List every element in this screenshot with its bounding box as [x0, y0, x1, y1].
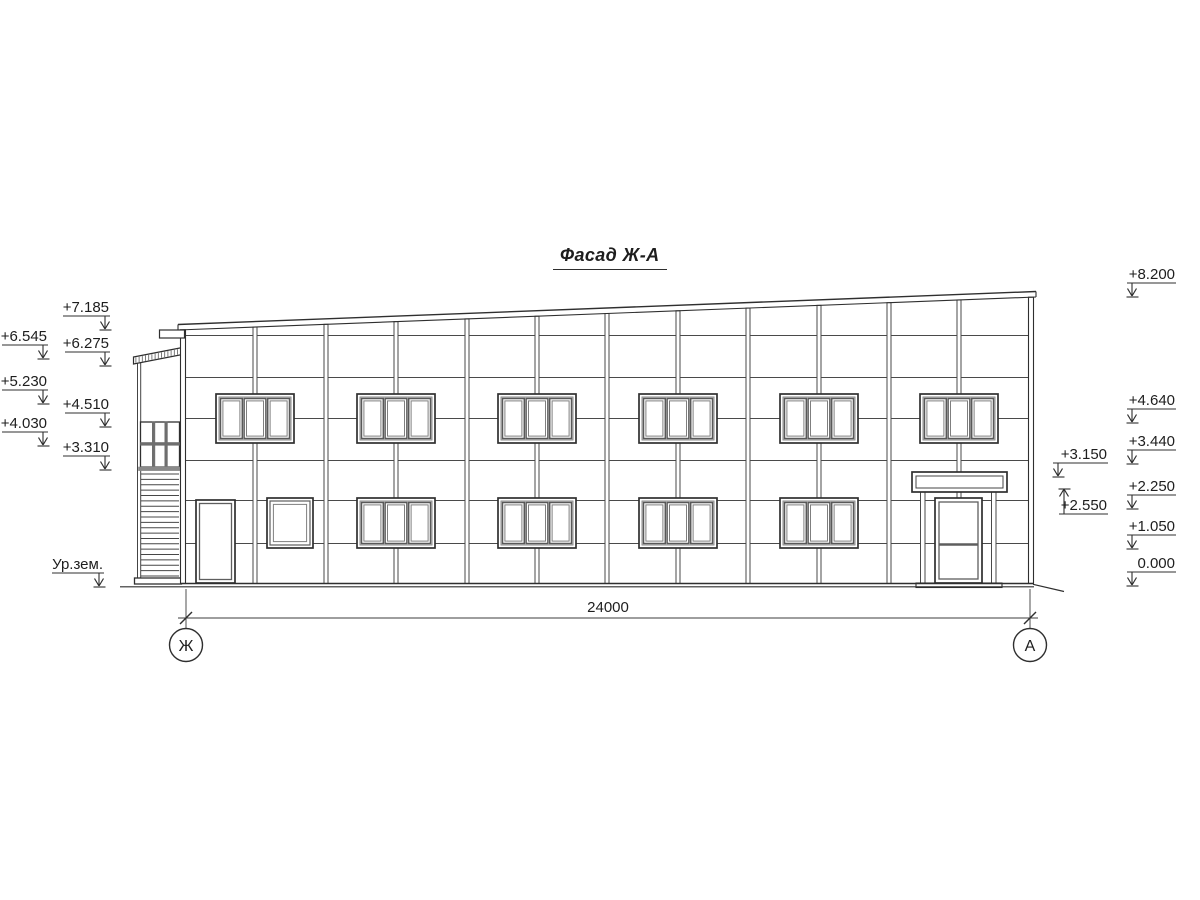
window-pane	[785, 503, 807, 544]
window-pane	[409, 503, 431, 544]
left-door	[196, 500, 235, 583]
elevation-arrow-head	[1128, 501, 1133, 509]
window-pane	[667, 399, 689, 439]
elevation-arrow-head	[101, 358, 106, 366]
elevation-arrow-head	[1128, 578, 1133, 586]
window-pane	[808, 399, 830, 439]
window-pane	[385, 399, 407, 439]
elevation-mark: +2.550	[1059, 489, 1109, 514]
elevation-label: +1.050	[1129, 518, 1175, 535]
window-pane	[832, 503, 854, 544]
elevation-arrow-head	[39, 351, 44, 359]
window-pane	[972, 399, 994, 439]
canopy-post	[921, 492, 926, 583]
elevation-arrow-head	[43, 351, 48, 359]
elevation-arrow-head	[39, 396, 44, 404]
elevation-label: +4.510	[63, 396, 109, 413]
elevation-arrow-head	[1058, 469, 1063, 477]
axis-label: А	[1025, 638, 1036, 655]
window-pane	[691, 503, 713, 544]
elevation-label: +2.550	[1061, 497, 1107, 514]
elevation-mark: +8.200	[1127, 266, 1177, 297]
window-pane	[503, 399, 525, 439]
elevation-arrow-head	[1128, 289, 1133, 297]
mullion	[465, 319, 469, 584]
elevation-arrow-head	[105, 358, 110, 366]
elevation-mark: +4.030	[1, 415, 50, 446]
window-pane	[667, 503, 689, 544]
elevation-label: +6.545	[1, 328, 47, 345]
entrance-canopy	[912, 472, 1007, 492]
ground-slope-line	[1033, 584, 1064, 591]
elevation-arrow-head	[1060, 489, 1065, 497]
window-pane	[526, 503, 548, 544]
window-pane	[244, 399, 266, 439]
elevation-label: +3.310	[63, 439, 109, 456]
elevation-label: +4.030	[1, 415, 47, 432]
elevation-mark: +3.150	[1053, 446, 1109, 477]
elevation-arrow-head	[105, 419, 110, 427]
window-pane	[409, 399, 431, 439]
elevation-label: +6.275	[63, 335, 109, 352]
window-pane	[550, 399, 572, 439]
canopy-post	[992, 492, 997, 583]
left-wall	[181, 330, 186, 584]
elevation-arrow-head	[1064, 489, 1069, 497]
mullion	[746, 308, 750, 583]
elevation-label: Ур.зем.	[52, 556, 103, 573]
window-pane	[644, 503, 666, 544]
window-pane	[785, 399, 807, 439]
window-pane	[362, 399, 384, 439]
elevation-mark: Ур.зем.	[52, 556, 106, 587]
entrance-door-frame	[935, 498, 982, 583]
window-pane	[550, 503, 572, 544]
elevation-arrow-head	[1128, 456, 1133, 464]
elevation-arrow-head	[101, 322, 106, 330]
elevation-label: +3.150	[1061, 446, 1107, 463]
door-frame	[196, 500, 235, 583]
tower-sill	[139, 467, 182, 471]
elevation-label: +5.230	[1, 373, 47, 390]
elevation-label: +4.640	[1129, 392, 1175, 409]
dimension-text: 24000	[587, 599, 629, 616]
elevation-arrow-head	[101, 462, 106, 470]
parapet-ledge	[160, 330, 185, 338]
window-pane	[503, 503, 525, 544]
elevation-arrow-head	[1132, 289, 1137, 297]
mullion	[887, 303, 891, 584]
elevation-mark: +6.545	[1, 328, 50, 359]
elevation-arrow-head	[1132, 501, 1137, 509]
mullion	[253, 327, 257, 583]
elevation-mark: +6.275	[63, 335, 112, 366]
axis-label: Ж	[179, 638, 194, 655]
entrance	[912, 472, 1007, 588]
elevation-arrow-head	[1128, 541, 1133, 549]
axis-markers: ЖА	[170, 629, 1047, 662]
elevation-label: +2.250	[1129, 478, 1175, 495]
elevation-arrow-head	[43, 438, 48, 446]
elevation-arrow-head	[1132, 456, 1137, 464]
facade-drawing: 24000ЖА+7.185+6.545+6.275+5.230+4.510+4.…	[0, 0, 1200, 900]
elevation-arrow-head	[39, 438, 44, 446]
window-pane	[362, 503, 384, 544]
elevation-mark: +4.510	[63, 396, 112, 427]
right-wall	[1029, 297, 1034, 583]
elevation-mark: +2.250	[1127, 478, 1177, 509]
elevation-arrow-head	[1132, 578, 1137, 586]
elevation-mark: +7.185	[63, 299, 112, 330]
window-pane	[832, 399, 854, 439]
drawing-canvas: Фасад Ж-А 24000ЖА+7.185+6.545+6.275+5.23…	[0, 0, 1200, 900]
window-pane	[526, 399, 548, 439]
elevation-arrow-head	[1054, 469, 1059, 477]
elevation-arrow-head	[1132, 541, 1137, 549]
tower-glazing-rail	[141, 443, 180, 446]
elevation-arrow-head	[43, 396, 48, 404]
window-pane	[925, 399, 947, 439]
window-pane	[385, 503, 407, 544]
elevation-label: +3.440	[1129, 433, 1175, 450]
elevation-mark: +5.230	[1, 373, 50, 404]
elevation-arrow-head	[105, 462, 110, 470]
elevation-mark: +4.640	[1127, 392, 1177, 423]
window-pane	[948, 399, 970, 439]
dimension-line: 24000	[178, 589, 1038, 629]
mullion	[605, 314, 609, 584]
window-pane	[808, 503, 830, 544]
elevation-arrow-head	[95, 579, 100, 587]
elevation-mark: 0.000	[1127, 555, 1177, 586]
stair-tower	[134, 347, 186, 584]
elevation-label: 0.000	[1137, 555, 1175, 572]
elevation-arrow-head	[101, 419, 106, 427]
window-pane	[691, 399, 713, 439]
elevation-label: +8.200	[1129, 266, 1175, 283]
window-pane	[221, 399, 243, 439]
elevation-arrow-head	[1128, 415, 1133, 423]
elevation-mark: +3.310	[63, 439, 112, 470]
elevation-arrow-head	[1132, 415, 1137, 423]
window-pane	[644, 399, 666, 439]
elevation-arrow-head	[105, 322, 110, 330]
elevation-arrow-head	[99, 579, 104, 587]
elevation-mark: +1.050	[1127, 518, 1177, 549]
tower-plinth	[135, 578, 182, 584]
window-pane	[268, 399, 290, 439]
elevation-mark: +3.440	[1127, 433, 1177, 464]
elevation-label: +7.185	[63, 299, 109, 316]
mullion	[324, 324, 328, 583]
